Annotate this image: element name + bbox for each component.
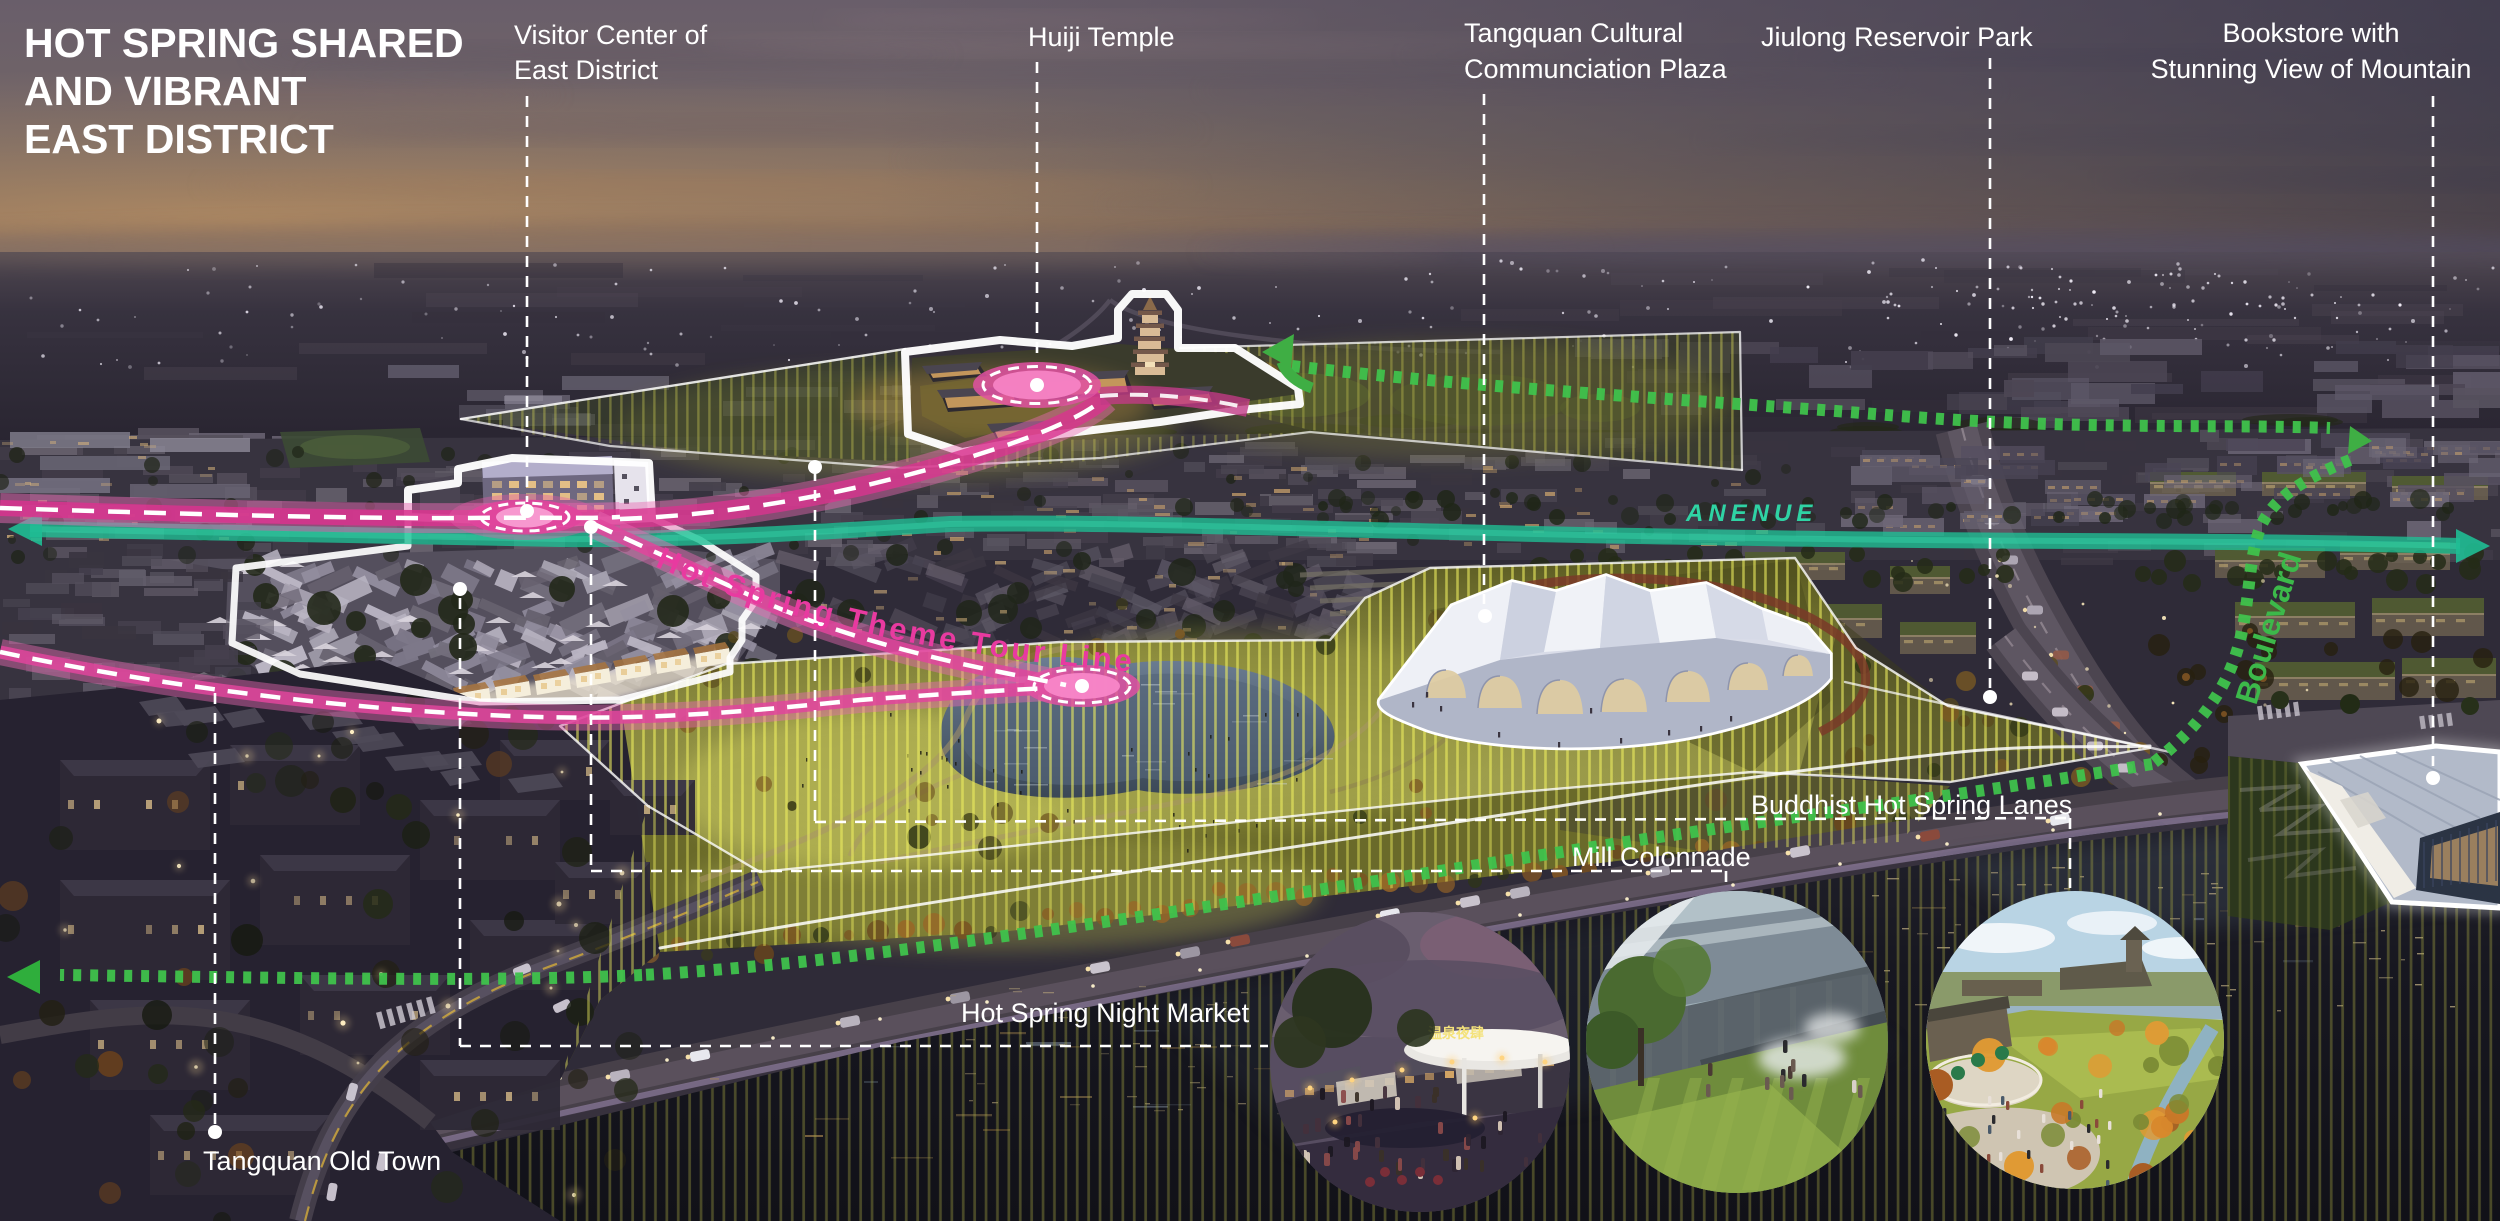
svg-text:East District: East District: [514, 55, 659, 85]
svg-text:Bookstore with: Bookstore with: [2222, 18, 2399, 48]
svg-text:HOT SPRING SHARED: HOT SPRING SHARED: [24, 20, 464, 66]
svg-text:Tangquan Old Town: Tangquan Old Town: [203, 1146, 441, 1176]
svg-text:Communciation Plaza: Communciation Plaza: [1464, 54, 1728, 84]
svg-text:Hot Spring Night Market: Hot Spring Night Market: [961, 998, 1250, 1028]
svg-text:AND VIBRANT: AND VIBRANT: [24, 68, 306, 114]
svg-text:Tangquan Cultural: Tangquan Cultural: [1464, 18, 1683, 48]
svg-text:Huiji Temple: Huiji Temple: [1028, 22, 1175, 52]
svg-text:ANENUE: ANENUE: [1685, 500, 1817, 527]
svg-text:Stunning View of Mountain: Stunning View of Mountain: [2151, 54, 2472, 84]
svg-text:EAST DISTRICT: EAST DISTRICT: [24, 116, 334, 162]
svg-text:Jiulong Reservoir Park: Jiulong Reservoir Park: [1761, 22, 2033, 52]
svg-text:Mill Colonnade: Mill Colonnade: [1572, 842, 1751, 872]
svg-text:Buddhist Hot Spring Lanes: Buddhist Hot Spring Lanes: [1751, 790, 2072, 820]
svg-text:Visitor Center of: Visitor Center of: [514, 20, 708, 50]
svg-text:温泉夜肆: 温泉夜肆: [1428, 1025, 1484, 1041]
